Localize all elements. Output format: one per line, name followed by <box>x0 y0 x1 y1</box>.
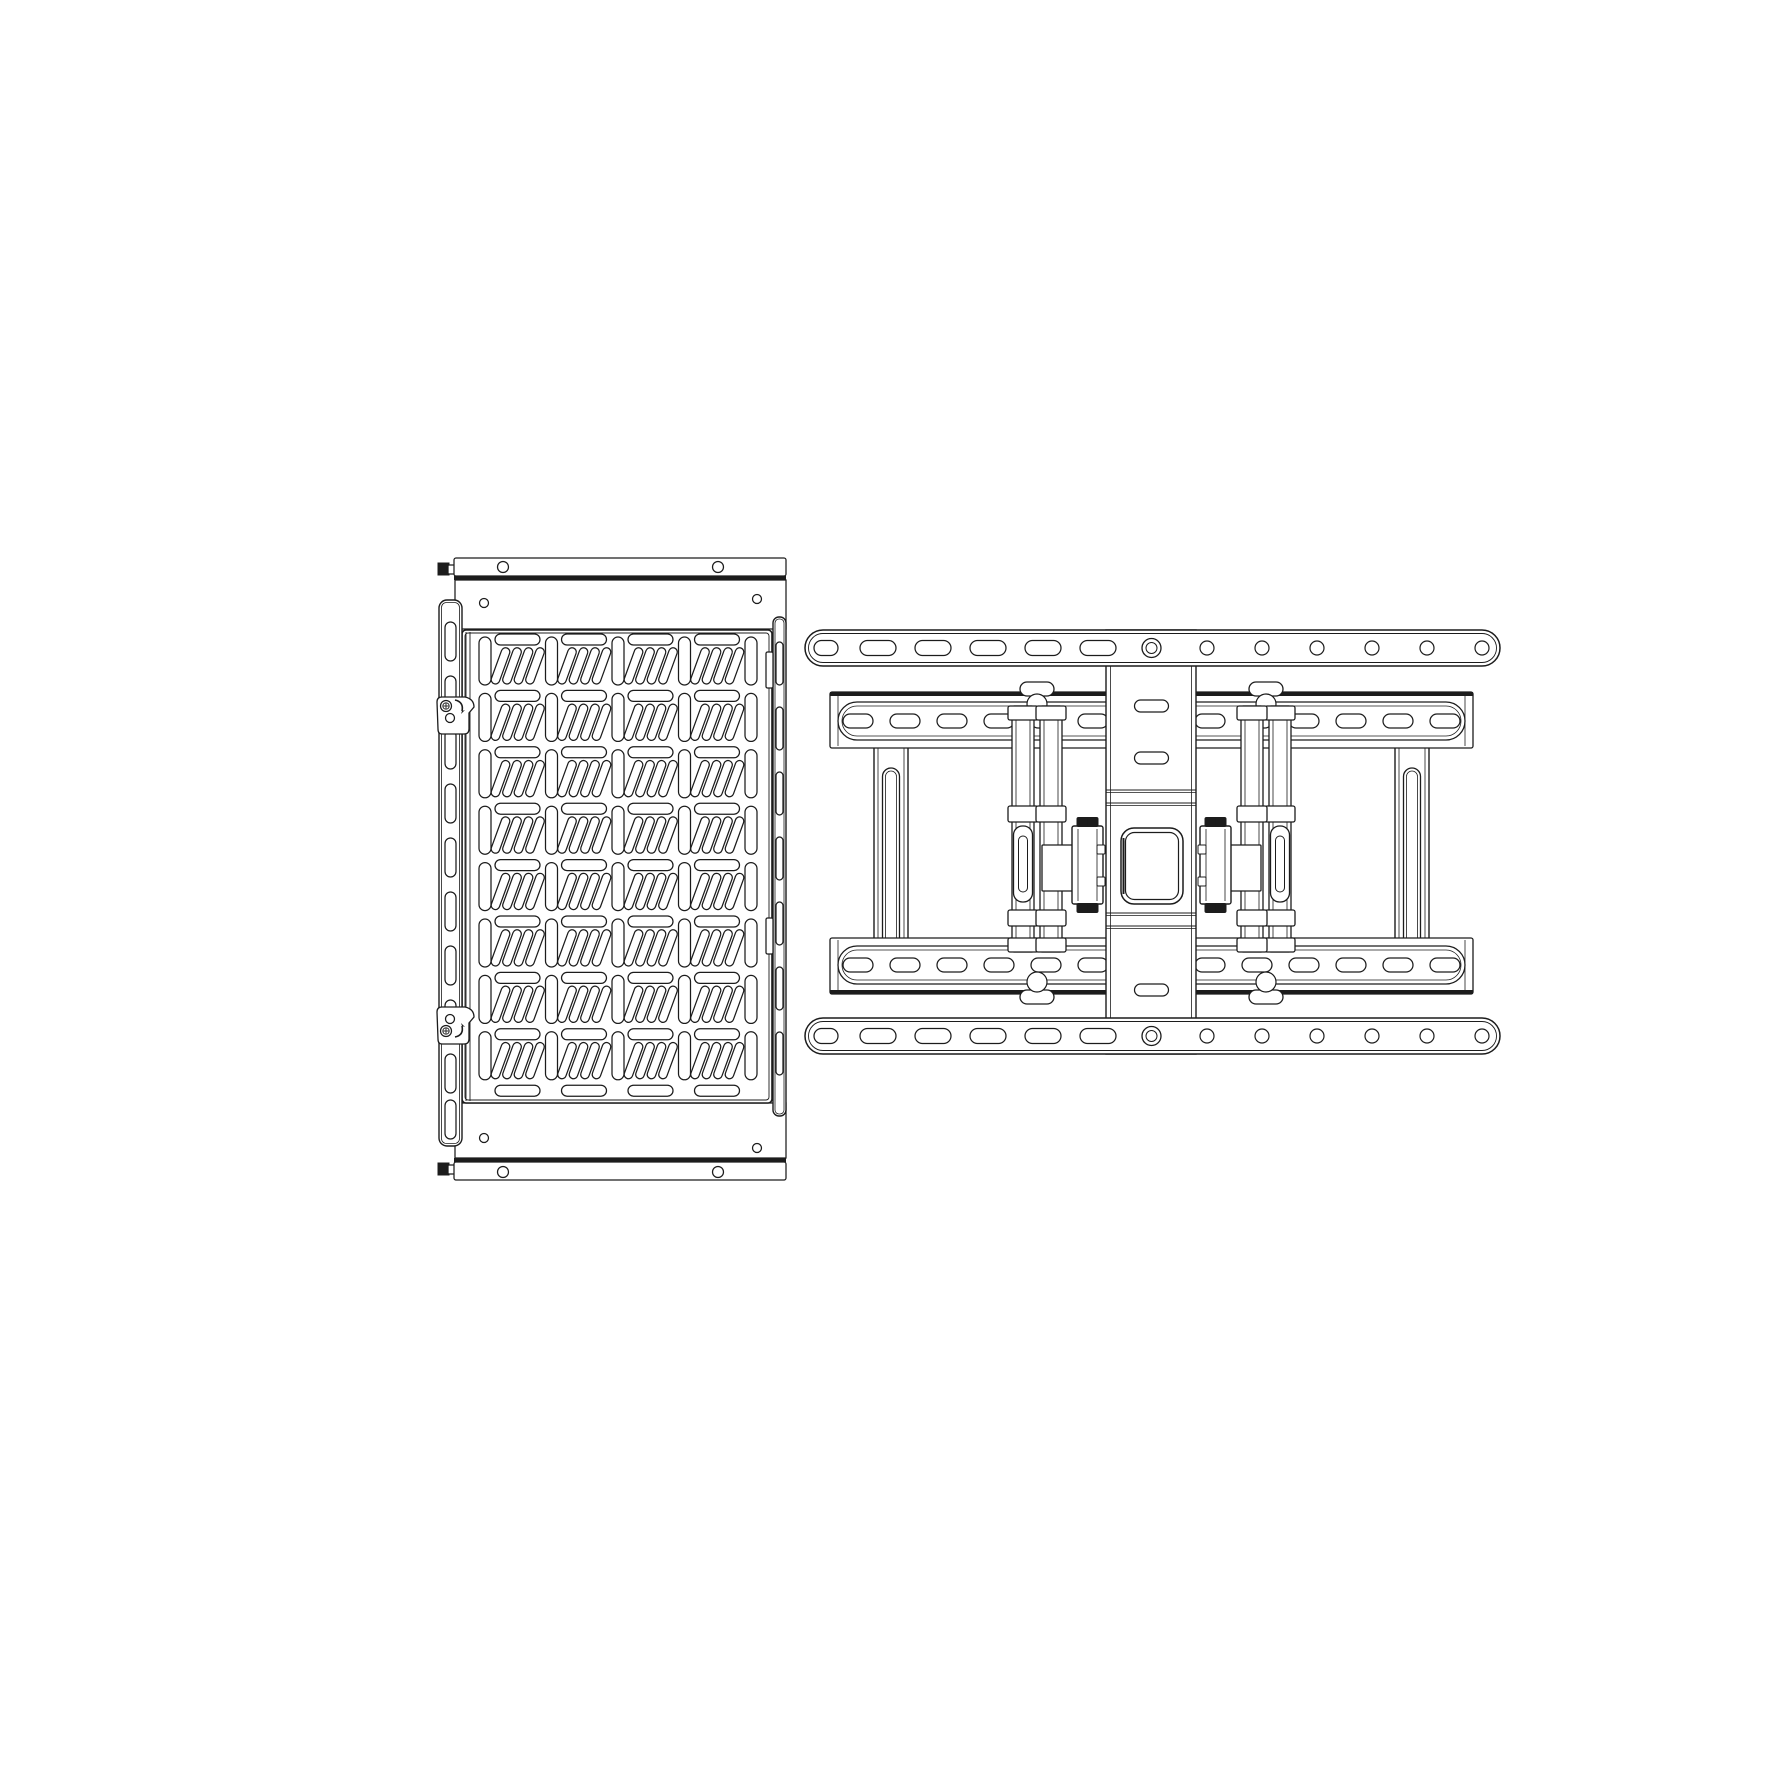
vent-panel-figure <box>437 558 786 1180</box>
ribbed-bolt-icon <box>1205 903 1227 913</box>
clamp-bracket <box>437 1007 474 1044</box>
top-tv-rail <box>805 630 1500 666</box>
bolt-icon <box>438 1163 456 1175</box>
bolt-icon <box>438 563 456 575</box>
tv-mount-figure <box>805 630 1500 1054</box>
clamp-bracket <box>437 697 474 734</box>
technical-drawing-page <box>0 0 1774 1774</box>
technical-drawing-canvas <box>0 0 1774 1774</box>
bottom-tv-rail <box>805 1018 1500 1054</box>
center-plate <box>1121 828 1183 904</box>
ribbed-bolt-icon <box>1205 817 1227 827</box>
ribbed-bolt-icon <box>1077 817 1099 827</box>
left-rail <box>439 600 462 1146</box>
ribbed-bolt-icon <box>1077 903 1099 913</box>
